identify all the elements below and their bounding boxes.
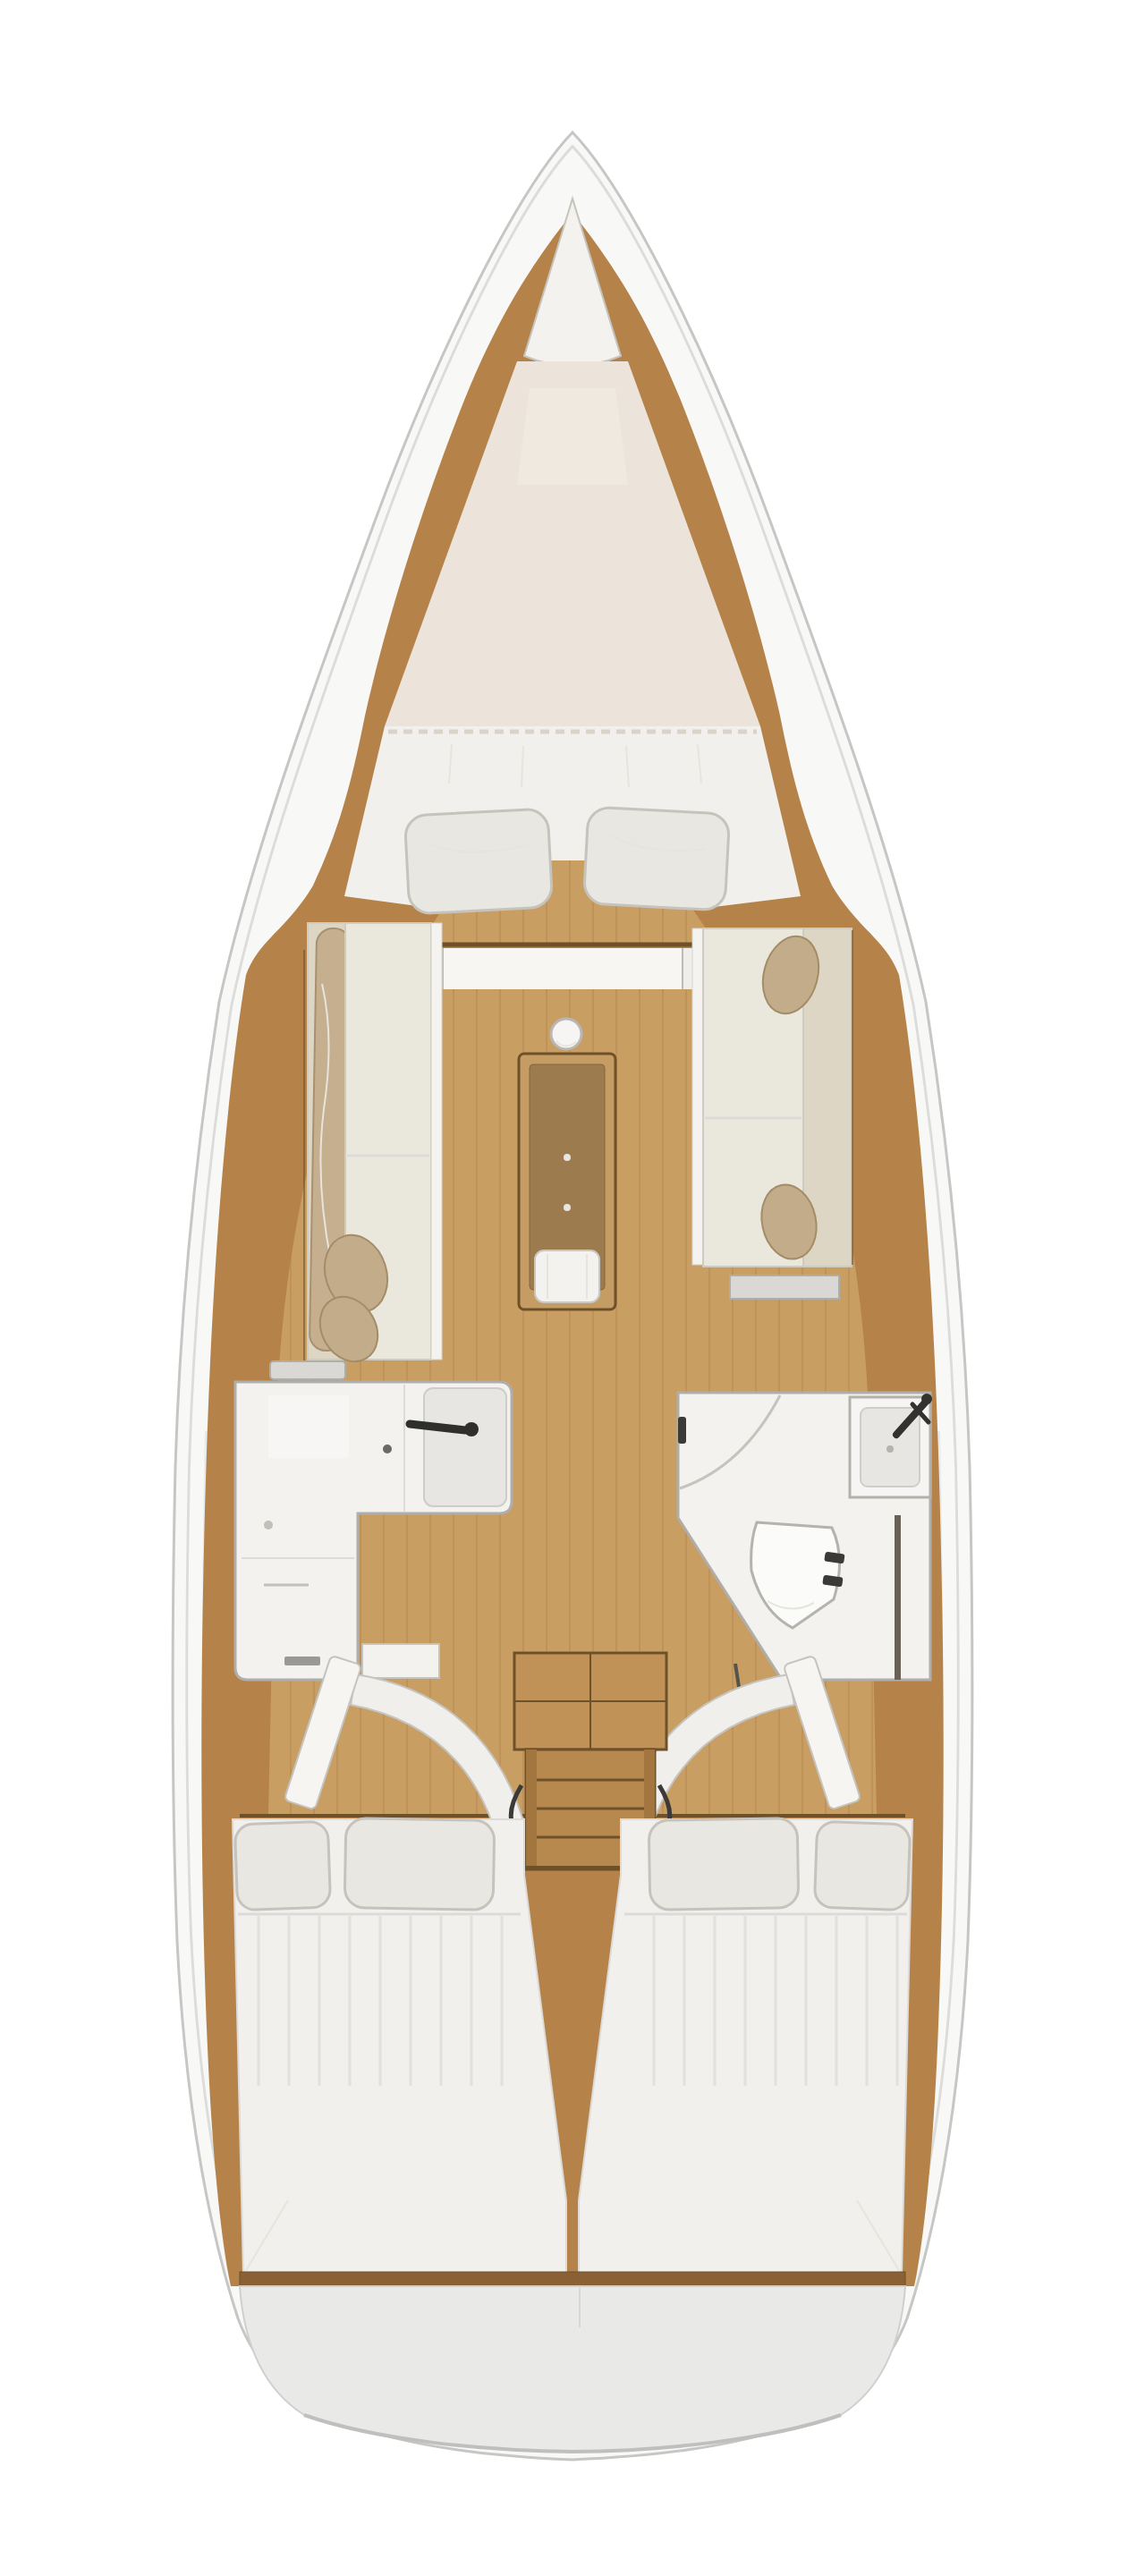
port-settee-foot: [270, 1361, 345, 1379]
fore-hatch: [517, 388, 628, 485]
starboard-settee-front-edge: [692, 928, 703, 1265]
bed-foot-board: [240, 2272, 905, 2286]
aft-bed-port-texture: [243, 1916, 517, 2086]
aft-cabin-port: [233, 1818, 566, 2274]
shower-fixture: [678, 1417, 686, 1444]
chart-seat: [730, 1275, 839, 1299]
yacht-floor-plan: [0, 0, 1145, 2576]
head-door-edge: [895, 1515, 901, 1680]
aft-bed-starboard-texture: [628, 1916, 902, 2086]
vberth-pillow-port: [404, 809, 553, 914]
bulkhead-doorway: [407, 948, 720, 989]
aft-bed-starboard-pillow: [649, 1818, 799, 1911]
head-sink: [850, 1394, 932, 1497]
galley-sink: [424, 1388, 506, 1506]
mast-post: [551, 1019, 581, 1049]
aft-bed-port-pillow: [344, 1818, 495, 1911]
stern: [240, 2272, 905, 2452]
port-settee-front-edge: [431, 923, 442, 1360]
galley-burner-knob: [383, 1445, 392, 1453]
table-base-cylinder: [535, 1250, 599, 1302]
table-hinge-dot: [564, 1154, 571, 1161]
aft-cabin-starboard: [579, 1818, 912, 2274]
galley-sill: [362, 1644, 439, 1678]
vberth-pillow-starboard: [583, 807, 729, 911]
starboard-settee: [692, 928, 852, 1299]
galley-glare: [268, 1395, 349, 1458]
table-hinge-dot: [564, 1204, 571, 1211]
salon-table: [519, 1054, 615, 1309]
aft-bed-starboard-pillow: [814, 1821, 910, 1911]
aft-bed-port-pillow: [234, 1821, 330, 1911]
